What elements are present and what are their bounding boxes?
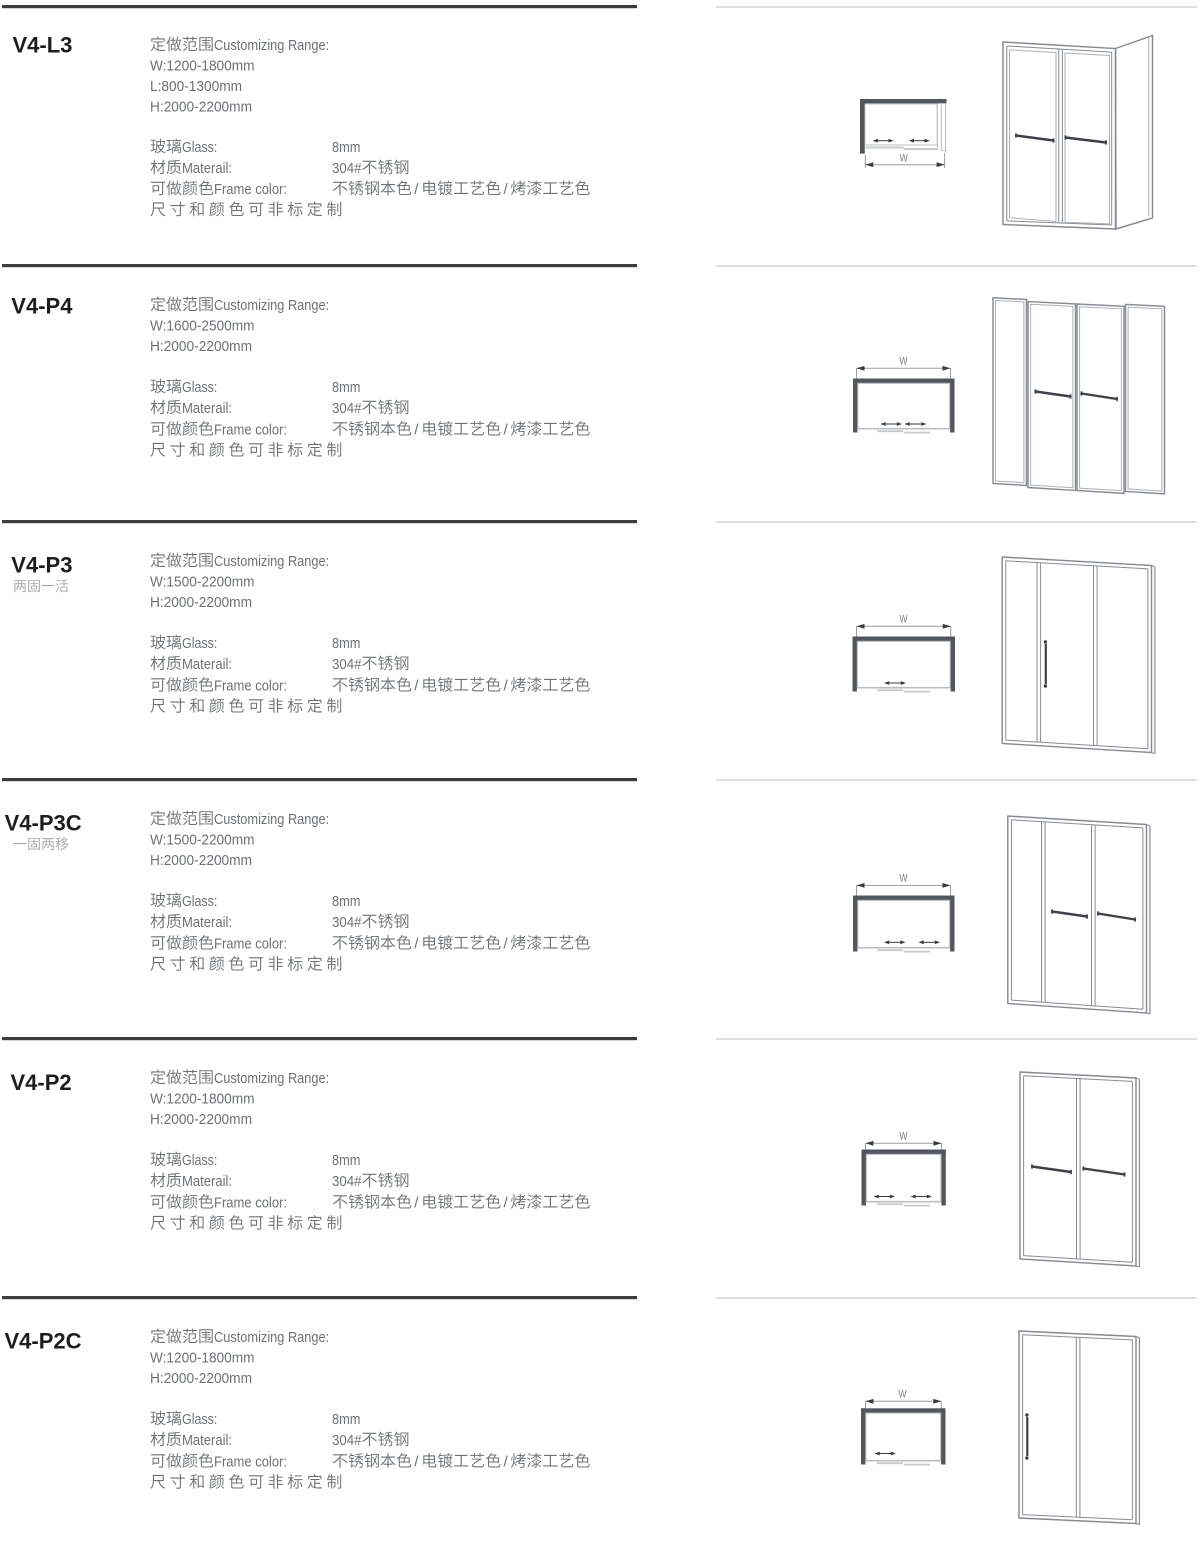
svg-text:Glass:: Glass: — [182, 1411, 217, 1428]
svg-text:8mm: 8mm — [332, 1152, 361, 1169]
svg-text:8mm: 8mm — [332, 635, 361, 652]
svg-text:Customizing Range:: Customizing Range: — [214, 297, 329, 314]
svg-text:Customizing Range:: Customizing Range: — [214, 37, 329, 54]
svg-text:W:1200-1800mm: W:1200-1800mm — [150, 1091, 255, 1108]
svg-text:8mm: 8mm — [332, 139, 361, 156]
svg-text:W:1500-2200mm: W:1500-2200mm — [150, 574, 255, 591]
svg-text:304#: 304# — [332, 656, 362, 673]
svg-text:Customizing Range:: Customizing Range: — [214, 1070, 329, 1087]
svg-text:8mm: 8mm — [332, 1411, 361, 1428]
svg-text:Frame color:: Frame color: — [214, 678, 287, 695]
svg-text:Glass:: Glass: — [182, 139, 217, 156]
svg-text:H:2000-2200mm: H:2000-2200mm — [150, 1370, 252, 1387]
svg-text:V4-P3C: V4-P3C — [5, 810, 82, 835]
svg-text:W: W — [899, 356, 908, 368]
svg-text:V4-L3: V4-L3 — [13, 33, 73, 58]
svg-text:Customizing Range:: Customizing Range: — [214, 553, 329, 570]
svg-text:W: W — [900, 153, 909, 165]
svg-text:Glass:: Glass: — [182, 379, 217, 396]
svg-text:8mm: 8mm — [332, 893, 361, 910]
svg-text:V4-P2C: V4-P2C — [5, 1329, 82, 1354]
svg-text:H:2000-2200mm: H:2000-2200mm — [150, 1111, 252, 1128]
svg-text:W: W — [899, 1130, 908, 1142]
svg-text:V4-P3: V4-P3 — [11, 553, 72, 578]
svg-text:Customizing Range:: Customizing Range: — [214, 811, 329, 828]
svg-text:Customizing Range:: Customizing Range: — [214, 1329, 329, 1346]
svg-text:H:2000-2200mm: H:2000-2200mm — [150, 594, 252, 611]
svg-text:304#: 304# — [332, 914, 362, 931]
svg-text:Materail:: Materail: — [182, 1173, 232, 1190]
svg-text:8mm: 8mm — [332, 379, 361, 396]
svg-text:W:1600-2500mm: W:1600-2500mm — [150, 318, 255, 335]
svg-text:H:2000-2200mm: H:2000-2200mm — [150, 852, 252, 869]
svg-text:Frame color:: Frame color: — [214, 1454, 287, 1471]
svg-text:Materail:: Materail: — [182, 400, 232, 417]
svg-text:W:1200-1800mm: W:1200-1800mm — [150, 1350, 255, 1367]
svg-text:304#: 304# — [332, 1432, 362, 1449]
svg-text:304#: 304# — [332, 400, 362, 417]
svg-text:W:1500-2200mm: W:1500-2200mm — [150, 832, 255, 849]
svg-text:Materail:: Materail: — [182, 160, 232, 177]
svg-text:304#: 304# — [332, 160, 362, 177]
svg-text:Materail:: Materail: — [182, 914, 232, 931]
svg-text:Frame color:: Frame color: — [214, 936, 287, 953]
svg-text:W:1200-1800mm: W:1200-1800mm — [150, 58, 255, 75]
svg-text:Frame color:: Frame color: — [214, 1195, 287, 1212]
svg-text:W: W — [899, 872, 908, 884]
svg-text:V4-P2: V4-P2 — [11, 1070, 72, 1095]
svg-text:H:2000-2200mm: H:2000-2200mm — [150, 99, 252, 116]
svg-text:H:2000-2200mm: H:2000-2200mm — [150, 338, 252, 355]
svg-text:L:800-1300mm: L:800-1300mm — [150, 78, 242, 95]
svg-text:V4-P4: V4-P4 — [11, 294, 73, 319]
svg-text:Glass:: Glass: — [182, 635, 217, 652]
svg-text:Frame color:: Frame color: — [214, 181, 287, 198]
svg-text:Glass:: Glass: — [182, 893, 217, 910]
svg-text:Materail:: Materail: — [182, 656, 232, 673]
svg-text:Frame color:: Frame color: — [214, 422, 287, 439]
svg-text:Glass:: Glass: — [182, 1152, 217, 1169]
svg-text:304#: 304# — [332, 1173, 362, 1190]
svg-text:W: W — [898, 1388, 907, 1400]
svg-text:W: W — [899, 613, 908, 625]
svg-text:Materail:: Materail: — [182, 1432, 232, 1449]
